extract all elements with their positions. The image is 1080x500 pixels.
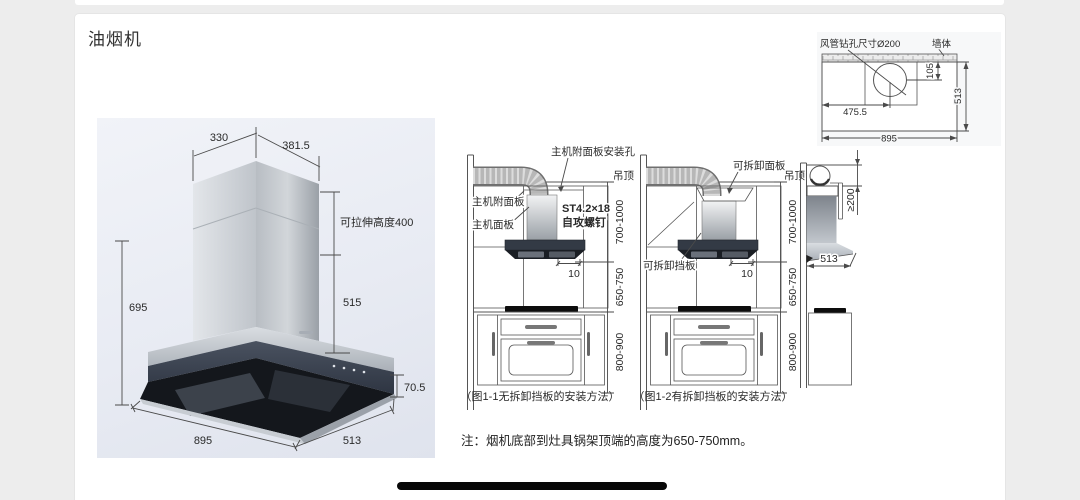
home-indicator-bar [397,482,667,490]
previous-card-edge [75,0,1004,5]
topview-panel [817,32,1001,146]
product-render-panel [97,118,435,458]
page-title: 油烟机 [88,25,142,50]
install-note: 注：烟机底部到灶具锅架顶端的高度为650-750mm。 [461,430,753,449]
spec-page: { "window": { "title": "油烟机" }, "note": … [0,0,1080,500]
